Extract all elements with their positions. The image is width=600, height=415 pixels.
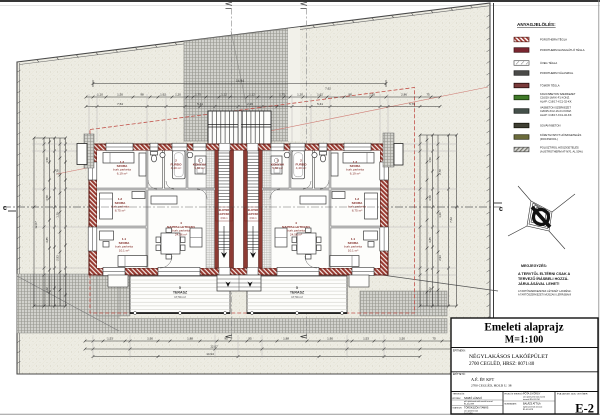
svg-text:BALÁZS ATTILA: BALÁZS ATTILA — [523, 403, 541, 406]
svg-text:1,50: 1,50 — [117, 93, 123, 97]
svg-text:É1-01-5678: É1-01-5678 — [523, 408, 533, 411]
svg-text:1,62: 1,62 — [45, 287, 49, 293]
svg-text:A.É. ÉP. KFT: A.É. ÉP. KFT — [471, 377, 495, 382]
svg-text:75: 75 — [426, 93, 430, 97]
svg-text:C16/20-16/KK-F1 KONZ.: C16/20-16/KK-F1 KONZ. — [540, 96, 570, 100]
svg-text:7,54: 7,54 — [117, 102, 123, 106]
svg-text:2700 CEGLÉD, HRSZ: 8071/40: 2700 CEGLÉD, HRSZ: 8071/40 — [469, 361, 535, 367]
svg-text:SOVÁNYBETON: SOVÁNYBETON — [540, 124, 560, 128]
svg-text:1,75: 1,75 — [279, 93, 285, 97]
svg-text:95: 95 — [224, 337, 228, 341]
svg-text:3,58: 3,58 — [45, 195, 49, 201]
svg-text:1,20: 1,20 — [56, 212, 60, 218]
svg-text:tervező É1-01-1234: tervező É1-01-1234 — [523, 398, 540, 401]
svg-text:98: 98 — [348, 93, 352, 97]
svg-text:4,40 m²: 4,40 m² — [296, 166, 307, 170]
svg-text:1,50: 1,50 — [399, 337, 405, 341]
svg-text:5,60 m²: 5,60 m² — [194, 166, 205, 170]
svg-text:C20/25-XC2-16-F1 KONZ.: C20/25-XC2-16-F1 KONZ. — [540, 109, 572, 113]
svg-text:2,86: 2,86 — [401, 93, 407, 97]
svg-text:1,12: 1,12 — [249, 93, 255, 97]
svg-text:M=1:100: M=1:100 — [505, 335, 543, 346]
svg-text:PÓTA GYÖRGY: PÓTA GYÖRGY — [523, 393, 541, 396]
svg-text:JÁRULÁSÁVAL LEHET!: JÁRULÁSÁVAL LEHET! — [518, 281, 559, 286]
svg-text:1,10: 1,10 — [97, 93, 103, 97]
svg-text:1,50: 1,50 — [45, 157, 49, 163]
svg-text:17,54 m²: 17,54 m² — [174, 295, 186, 299]
svg-text:TÖRÖKSZŐKI TAMÁS: TÖRÖKSZŐKI TAMÁS — [464, 407, 489, 410]
svg-text:12,07: 12,07 — [34, 221, 38, 229]
svg-text:ELOTER: ELOTER — [248, 208, 259, 212]
svg-text:TERVEZŐK:: TERVEZŐK: — [453, 393, 466, 396]
svg-text:POROTHERM VÁLASZFAL: POROTHERM VÁLASZFAL — [540, 71, 574, 75]
svg-text:ÉVA DÁTUM: 2006. OKTÓBER: ÉVA DÁTUM: 2006. OKTÓBER — [557, 393, 588, 396]
svg-text:1,20: 1,20 — [438, 212, 442, 218]
svg-text:ANYAGJELÖLÉS:: ANYAGJELÖLÉS: — [517, 20, 556, 27]
svg-text:1,53: 1,53 — [363, 337, 369, 341]
svg-text:TERASZ: TERASZ — [173, 291, 188, 295]
svg-text:É1-01-0789: É1-01-0789 — [464, 403, 474, 406]
svg-text:1,50: 1,50 — [369, 93, 375, 97]
svg-text:5: 5 — [296, 286, 298, 290]
svg-text:VASBETON SZERKEZET: VASBETON SZERKEZET — [540, 105, 571, 109]
svg-text:5,60 m²: 5,60 m² — [272, 166, 283, 170]
svg-text:1,75: 1,75 — [195, 93, 201, 97]
svg-text:1,62: 1,62 — [317, 93, 323, 97]
svg-text:1,50: 1,50 — [428, 157, 432, 163]
svg-text:A TERVTŐL ELTÉRNI CSAK A: A TERVTŐL ELTÉRNI CSAK A — [518, 271, 571, 276]
svg-text:3,85: 3,85 — [428, 237, 432, 243]
svg-text:c: c — [3, 205, 7, 212]
svg-text:8,75 m²: 8,75 m² — [115, 208, 126, 212]
svg-text:4,40 m²: 4,40 m² — [171, 166, 182, 170]
svg-text:1,90: 1,90 — [147, 337, 153, 341]
svg-text:ÉPÍTTETŐ:: ÉPÍTTETŐ: — [453, 373, 466, 376]
svg-text:TERASZ: TERASZ — [290, 291, 305, 295]
svg-text:Emeleti alaprajz: Emeleti alaprajz — [484, 322, 563, 334]
svg-text:1,62: 1,62 — [428, 287, 432, 293]
svg-text:FELELŐS TERVEZŐ:: FELELŐS TERVEZŐ: — [505, 393, 524, 396]
svg-text:6,19 m²: 6,19 m² — [117, 171, 128, 175]
svg-text:KAVICSBETON SZERKEZET: KAVICSBETON SZERKEZET — [540, 92, 576, 96]
svg-text:14,94: 14,94 — [236, 79, 244, 83]
svg-text:1,12: 1,12 — [221, 93, 227, 97]
svg-text:3,62 m: 3,62 m — [220, 217, 227, 220]
svg-text:2,78: 2,78 — [438, 169, 442, 175]
svg-text:(ROCKWOOL): (ROCKWOOL) — [540, 137, 558, 141]
svg-text:24,56 m²: 24,56 m² — [175, 232, 187, 236]
svg-text:1,62: 1,62 — [160, 93, 166, 97]
svg-text:14,94: 14,94 — [206, 352, 214, 356]
svg-text:1,20: 1,20 — [175, 93, 181, 97]
svg-text:LEPCSO: LEPCSO — [219, 212, 230, 216]
svg-text:NÉGYLAKÁSOS LAKÓÉPÜLET: NÉGYLAKÁSOS LAKÓÉPÜLET — [469, 352, 549, 360]
svg-text:2,93: 2,93 — [56, 255, 60, 261]
svg-text:5,79: 5,79 — [409, 102, 415, 106]
svg-text:2,93: 2,93 — [438, 255, 442, 261]
svg-text:17,54 m²: 17,54 m² — [291, 295, 303, 299]
svg-text:TERVEZŐ ÍRÁSBELI HOZZÁ-: TERVEZŐ ÍRÁSBELI HOZZÁ- — [518, 276, 569, 281]
svg-text:ÉPÍTMÉNY:: ÉPÍTMÉNY: — [453, 350, 466, 353]
svg-text:10,1 m²: 10,1 m² — [119, 248, 130, 252]
svg-text:1,90: 1,90 — [327, 337, 333, 341]
svg-text:A TARTÓSZERKEZETI MÚSZAKI LEÍR: A TARTÓSZERKEZETI MÚSZAKI LEÍRÁSBAN! — [518, 294, 571, 297]
svg-text:2,78: 2,78 — [56, 169, 60, 175]
svg-text:MUNKATÁRS:: MUNKATÁRS: — [505, 403, 518, 406]
svg-text:MEGJEGYZÉS:: MEGJEGYZÉS: — [521, 263, 547, 268]
svg-text:SZABÓ LÁSZLÓ: SZABÓ LÁSZLÓ — [464, 397, 482, 400]
svg-text:3,58: 3,58 — [428, 195, 432, 201]
svg-text:STATIKUS:: STATIKUS: — [453, 407, 463, 410]
svg-text:ALAP: C16/17-XC1-32-KK: ALAP: C16/17-XC1-32-KK — [540, 99, 572, 103]
svg-text:5: 5 — [179, 286, 181, 290]
svg-text:7,62: 7,62 — [325, 87, 331, 91]
svg-text:5,41: 5,41 — [317, 102, 323, 106]
svg-text:2,26: 2,26 — [247, 102, 253, 106]
svg-text:95: 95 — [248, 337, 252, 341]
svg-text:ELOTER: ELOTER — [219, 208, 230, 212]
svg-text:6,19 m²: 6,19 m² — [350, 171, 361, 175]
svg-text:E-2: E-2 — [575, 402, 594, 415]
svg-text:3,85: 3,85 — [45, 237, 49, 243]
svg-text:24,56 m²: 24,56 m² — [290, 232, 302, 236]
svg-text:12,07: 12,07 — [210, 345, 218, 349]
svg-text:1,88: 1,88 — [283, 337, 289, 341]
svg-text:8,75 m²: 8,75 m² — [352, 208, 363, 212]
svg-text:3,62 m: 3,62 m — [249, 217, 256, 220]
svg-text:LEPCSO: LEPCSO — [248, 212, 259, 216]
svg-text:7,62: 7,62 — [449, 217, 453, 223]
svg-text:75: 75 — [432, 337, 436, 341]
svg-text:98: 98 — [140, 93, 144, 97]
svg-text:1,53: 1,53 — [107, 337, 113, 341]
svg-text:(AUSTROTHERM AT-N70, AL 50%): (AUSTROTHERM AT-N70, AL 50%) — [540, 150, 583, 154]
svg-text:1,20: 1,20 — [297, 93, 303, 97]
svg-text:5,41: 5,41 — [197, 102, 203, 106]
svg-text:10,1 m²: 10,1 m² — [348, 248, 359, 252]
svg-text:1,88: 1,88 — [187, 337, 193, 341]
svg-text:ALAP: C16/17-XC1-32-KK: ALAP: C16/17-XC1-32-KK — [540, 113, 572, 117]
svg-text:ÉPÍTÉSZ:: ÉPÍTÉSZ: — [453, 397, 462, 400]
